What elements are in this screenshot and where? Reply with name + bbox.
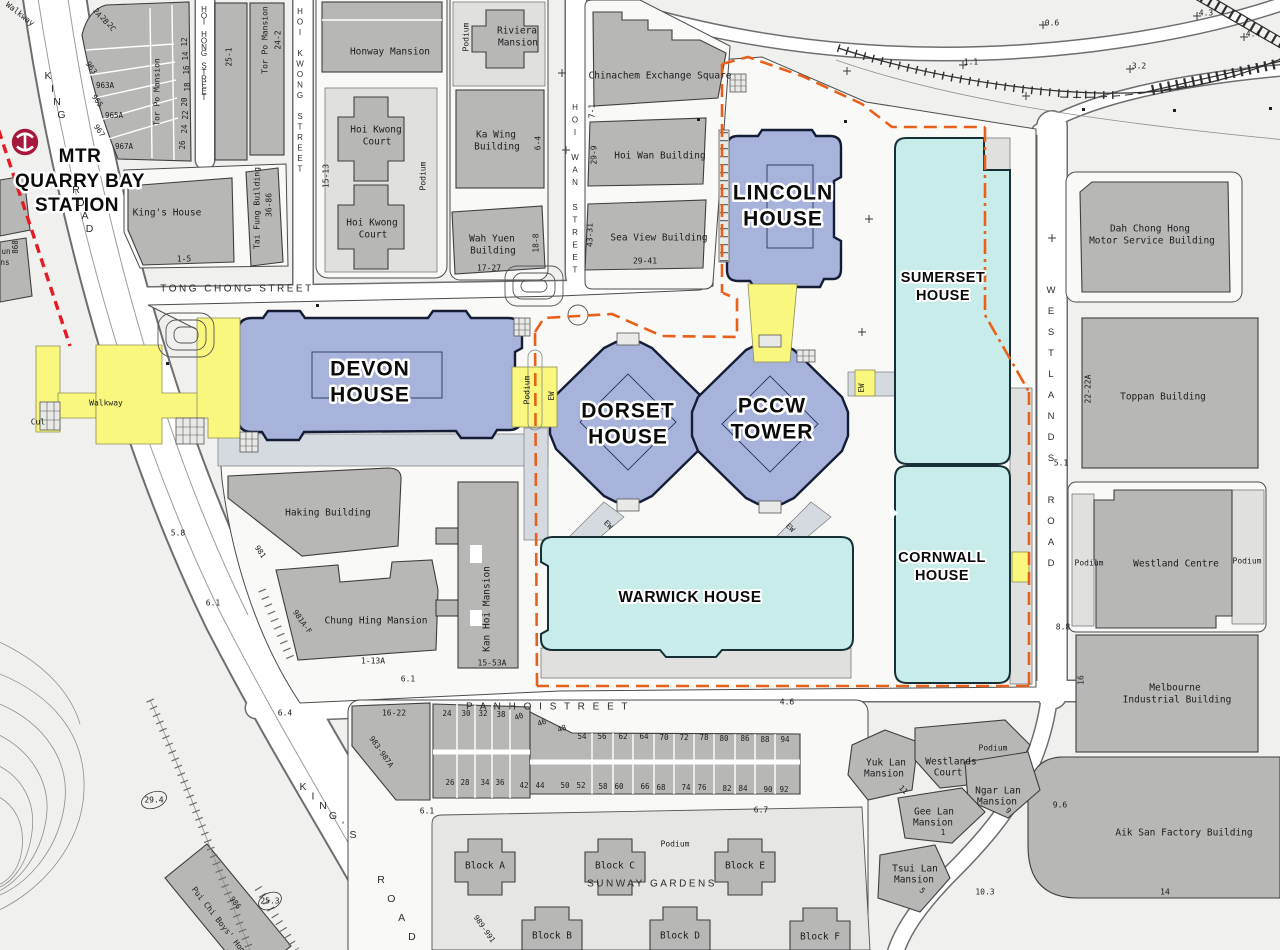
streets-hoi-hong-street-label: HOI HONG STREET bbox=[201, 5, 207, 102]
buildings-block-d-label: Block D bbox=[660, 931, 700, 942]
buildings-36-86-label: 36-86 bbox=[265, 193, 274, 217]
buildings-building-label: Building bbox=[470, 246, 516, 257]
buildings-1-label: 1 bbox=[941, 828, 946, 837]
major_buildings-warwick-house-label: WARWICK HOUSE bbox=[618, 589, 761, 606]
house_numbers-56-label: 56 bbox=[597, 732, 607, 741]
house_numbers-52-label: 52 bbox=[576, 781, 585, 790]
buildings-967a-label: 967A bbox=[115, 142, 134, 151]
buildings-16-22-label: 16-22 bbox=[382, 709, 406, 718]
buildings-tai-fung-building-label: Tai Fung Building bbox=[253, 167, 262, 249]
buildings-podium-label: Podium bbox=[419, 161, 428, 190]
buildings-mansion-label: Mansion bbox=[498, 38, 538, 49]
buildings-1-5-label: 1-5 bbox=[177, 255, 192, 264]
walkways-ew-label: EW bbox=[547, 391, 556, 401]
sumerset-notch bbox=[984, 138, 1010, 172]
buildings-podium-label: Podium bbox=[661, 840, 690, 849]
spot_heights-10-3-label: 10.3 bbox=[975, 888, 994, 897]
buildings-chinachem-exchange-square-label: Chinachem Exchange Square bbox=[589, 71, 732, 82]
buildings-westlands-label: Westlands bbox=[925, 757, 976, 768]
spot_heights-6-1-label: 6.1 bbox=[401, 675, 416, 684]
major_buildings-house-label: HOUSE bbox=[743, 208, 823, 231]
buildings-building-label: Building bbox=[474, 142, 520, 153]
kan-hoi-wing-2 bbox=[436, 600, 458, 616]
spot_heights-5-8-label: 5.8 bbox=[171, 529, 186, 538]
house_numbers-42-label: 42 bbox=[519, 781, 528, 790]
major_buildings-house-label: HOUSE bbox=[588, 426, 668, 449]
buildings-tor-po-mansion-label: Tor Po Mansion bbox=[153, 58, 162, 126]
buildings-ns-label: ns bbox=[0, 258, 9, 267]
buildings-hoi-kwong-label: Hoi Kwong bbox=[346, 218, 397, 229]
house_numbers-62-label: 62 bbox=[618, 732, 627, 741]
house_numbers-68-label: 68 bbox=[656, 783, 666, 792]
house_numbers-24-label: 24 bbox=[442, 709, 452, 718]
house_numbers-74-label: 74 bbox=[681, 783, 691, 792]
buildings-963a-label: 963A bbox=[96, 81, 115, 90]
buildings-25-1-label: 25-1 bbox=[225, 47, 234, 66]
house_numbers-54-label: 54 bbox=[577, 732, 587, 741]
buildings-melbourne-label: Melbourne bbox=[1149, 683, 1201, 694]
kan-hoi-gap-2 bbox=[470, 610, 482, 626]
buildings-29-9-label: 29-9 bbox=[590, 145, 599, 164]
spot_heights-5-1-label: 5.1 bbox=[1054, 459, 1069, 468]
buildings-toppan-building-label: Toppan Building bbox=[1120, 392, 1206, 403]
buildings-block-b-label: Block B bbox=[532, 931, 572, 942]
major_buildings-house-label: HOUSE bbox=[915, 568, 969, 584]
buildings-14-label: 14 bbox=[181, 51, 190, 61]
house_numbers-60-label: 60 bbox=[614, 782, 624, 791]
walkways-walkway-label: Walkway bbox=[89, 399, 123, 408]
spot_heights-6-1-label: 6.1 bbox=[420, 807, 435, 816]
major_buildings-dorset-label: DORSET bbox=[581, 400, 675, 423]
buildings-24-label: 24 bbox=[180, 124, 189, 134]
buildings-honway-mansion-label: Honway Mansion bbox=[350, 47, 430, 58]
pccw-turret-n bbox=[759, 335, 781, 347]
buildings-20-label: 20 bbox=[180, 97, 189, 107]
buildings-block-a-label: Block A bbox=[465, 861, 505, 872]
buildings-podium-label: Podium bbox=[462, 22, 471, 51]
buildings-block-e-label: Block E bbox=[725, 861, 765, 872]
buildings-wah-yuen-label: Wah Yuen bbox=[469, 234, 515, 245]
buildings-1-13a-label: 1-13A bbox=[361, 657, 385, 666]
kan-hoi-gap-1 bbox=[470, 545, 482, 563]
buildings-block-f-label: Block F bbox=[800, 932, 840, 943]
house_numbers-76-label: 76 bbox=[697, 783, 707, 792]
mtr-logo bbox=[12, 129, 38, 155]
spot_heights-6-7-label: 6.7 bbox=[754, 806, 769, 815]
buildings-un-label: un bbox=[1, 247, 10, 256]
spot_heights-8-8-label: 8.8 bbox=[1056, 623, 1071, 632]
spot_heights-6-1-label: 6.1 bbox=[206, 599, 221, 608]
house_numbers-28-label: 28 bbox=[460, 778, 470, 787]
buildings-6-4-label: 6-4 bbox=[534, 136, 543, 151]
streets-sunway-gardens-label: SUNWAY GARDENS bbox=[587, 879, 717, 890]
major_buildings-house-label: HOUSE bbox=[916, 288, 970, 304]
buildings-16-label: 16 bbox=[1077, 675, 1086, 685]
honway-mansion bbox=[322, 2, 442, 72]
buildings-sea-view-building-label: Sea View Building bbox=[610, 233, 707, 244]
buildings-ka-wing-label: Ka Wing bbox=[476, 130, 516, 141]
buildings-22-label: 22 bbox=[181, 110, 190, 119]
station-mtr-label: MTR bbox=[59, 146, 102, 167]
buildings-hoi-kwong-label: Hoi Kwong bbox=[350, 125, 401, 136]
house_numbers-80-label: 80 bbox=[719, 734, 729, 743]
spot_heights-29-4-label: 29.4 bbox=[144, 796, 163, 805]
buildings-24-2-label: 24-2 bbox=[274, 30, 283, 49]
buildings-haking-building-label: Haking Building bbox=[285, 508, 371, 519]
walkways-ew-label: EW bbox=[857, 383, 866, 393]
buildings-podium-label: Podium bbox=[979, 744, 1008, 753]
house_numbers-90-label: 90 bbox=[763, 785, 773, 794]
buildings-16-label: 16 bbox=[182, 65, 191, 75]
buildings-14-label: 14 bbox=[1160, 888, 1170, 897]
stair-grid-2 bbox=[240, 432, 258, 452]
kan-hoi-wing-1 bbox=[436, 528, 458, 544]
buildings-chung-hing-mansion-label: Chung Hing Mansion bbox=[325, 616, 428, 627]
house_numbers-44-label: 44 bbox=[535, 781, 545, 790]
walkways-podium-label: Podium bbox=[523, 375, 532, 404]
buildings-court-label: Court bbox=[363, 137, 392, 148]
house_numbers-92-label: 92 bbox=[779, 785, 788, 794]
buildings-7-1-label: 7-1 bbox=[588, 104, 597, 119]
spot_heights-3-2-label: 3.2 bbox=[1132, 62, 1147, 71]
buildings-podium-label: Podium bbox=[1075, 559, 1104, 568]
house_numbers-30-label: 30 bbox=[461, 709, 471, 718]
house_numbers-58-label: 58 bbox=[598, 782, 608, 791]
walkway-cornwall-east bbox=[1012, 552, 1029, 582]
buildings-965a-label: 965A bbox=[105, 111, 124, 120]
major_buildings-sumerset-label: SUMERSET bbox=[901, 270, 986, 286]
house_numbers-32-label: 32 bbox=[478, 709, 487, 718]
buildings-industrial-building-label: Industrial Building bbox=[1123, 695, 1232, 706]
buildings-kan-hoi-mansion-label: Kan Hoi Mansion bbox=[482, 566, 493, 652]
house_numbers-64-label: 64 bbox=[639, 732, 649, 741]
dorset-turret-n bbox=[617, 333, 639, 345]
buildings-mansion-label: Mansion bbox=[913, 818, 953, 829]
buildings-mansion-label: Mansion bbox=[864, 769, 904, 780]
buildings-18-label: 18 bbox=[183, 82, 192, 92]
spot_heights-0-6-label: 0.6 bbox=[1045, 19, 1060, 28]
buildings-18-8-label: 18-8 bbox=[532, 233, 541, 252]
buildings-12-label: 12 bbox=[180, 37, 189, 46]
buildings-868-label: 868 bbox=[11, 240, 20, 254]
buildings-29-41-label: 29-41 bbox=[633, 257, 657, 266]
station-quarry-bay-label: QUARRY BAY bbox=[15, 171, 145, 192]
house_numbers-78-label: 78 bbox=[699, 733, 709, 742]
buildings-ngar-lan-label: Ngar Lan bbox=[975, 786, 1021, 797]
buildings-15-53a-label: 15-53A bbox=[478, 659, 507, 668]
buildings-aik-san-factory-building-label: Aik San Factory Building bbox=[1115, 828, 1252, 839]
buildings-king-s-house-label: King's House bbox=[133, 208, 202, 219]
spot_heights-4-3-label: 4.3 bbox=[1199, 9, 1214, 18]
buildings-17-27-label: 17-27 bbox=[477, 264, 501, 273]
buildings-gee-lan-label: Gee Lan bbox=[914, 807, 954, 818]
buildings-43-31-label: 43-31 bbox=[586, 223, 595, 247]
major_buildings-devon-label: DEVON bbox=[330, 358, 410, 381]
walkways-cul-label: Cul bbox=[31, 418, 46, 427]
major_buildings-house-label: HOUSE bbox=[330, 384, 410, 407]
house_numbers-38-label: 38 bbox=[496, 710, 506, 719]
house_numbers-88-label: 88 bbox=[760, 735, 770, 744]
house_numbers-34-label: 34 bbox=[480, 778, 490, 787]
house_numbers-70-label: 70 bbox=[659, 733, 669, 742]
house_numbers-84-label: 84 bbox=[738, 784, 748, 793]
buildings-dah-chong-hong-label: Dah Chong Hong bbox=[1110, 224, 1190, 235]
house_numbers-26-label: 26 bbox=[445, 778, 455, 787]
walkway-lincoln-pccw bbox=[748, 284, 797, 362]
streets-p-a-n-h-o-i-s-t-r-e-e-t-label: P A N H O I S T R E E T bbox=[466, 702, 630, 713]
house_numbers-50-label: 50 bbox=[560, 781, 570, 790]
house_numbers-82-label: 82 bbox=[722, 784, 731, 793]
building-25-1 bbox=[215, 3, 247, 160]
spot_heights-9-6-label: 9.6 bbox=[1053, 801, 1068, 810]
buildings-hoi-wan-building-label: Hoi Wan Building bbox=[614, 151, 706, 162]
stair-grid-4 bbox=[730, 74, 746, 92]
major_buildings-lincoln-label: LINCOLN bbox=[733, 182, 833, 205]
spot_heights-6-4-label: 6.4 bbox=[278, 709, 293, 718]
major_buildings-pccw-label: PCCW bbox=[738, 395, 806, 418]
house_numbers-66-label: 66 bbox=[640, 782, 650, 791]
buildings-22-22a-label: 22-22A bbox=[1084, 374, 1093, 403]
stair-grid-1 bbox=[514, 318, 530, 336]
buildings-tor-po-mansion-label: Tor Po Mansion bbox=[261, 6, 270, 74]
major_buildings-tower-label: TOWER bbox=[731, 421, 814, 444]
pccw-turret-s bbox=[759, 501, 781, 513]
buildings-court-label: Court bbox=[359, 230, 388, 241]
buildings-podium-label: Podium bbox=[1233, 557, 1262, 566]
buildings-court-label: Court bbox=[934, 768, 963, 779]
buildings-westland-centre-label: Westland Centre bbox=[1133, 559, 1219, 570]
spot_heights-4-4-label: 4.4 bbox=[1246, 30, 1261, 39]
buildings-15-13-label: 15-13 bbox=[322, 164, 331, 188]
spot_heights-4-6-label: 4.6 bbox=[780, 698, 795, 707]
melbourne-industrial-building bbox=[1076, 635, 1258, 752]
major_buildings-cornwall-label: CORNWALL bbox=[898, 550, 986, 566]
buildings-block-c-label: Block C bbox=[595, 861, 635, 872]
house_numbers-72-label: 72 bbox=[679, 733, 688, 742]
house_numbers-36-label: 36 bbox=[495, 778, 505, 787]
buildings-mansion-label: Mansion bbox=[894, 875, 934, 886]
buildings-yuk-lan-label: Yuk Lan bbox=[866, 758, 906, 769]
map-stage: MTR QUARRY BAY STATION bbox=[0, 0, 1280, 950]
buildings-26-label: 26 bbox=[178, 140, 187, 150]
house_numbers-94-label: 94 bbox=[780, 735, 790, 744]
buildings-motor-service-building-label: Motor Service Building bbox=[1089, 236, 1215, 247]
dorset-turret-s bbox=[617, 499, 639, 511]
buildings-riviera-label: Riviera bbox=[497, 26, 537, 37]
spot_heights-25-3-label: 25.3 bbox=[260, 897, 279, 906]
buildings-tsui-lan-label: Tsui Lan bbox=[892, 864, 938, 875]
spot_heights-1-1-label: 1.1 bbox=[964, 58, 979, 67]
site-map: MTR QUARRY BAY STATION bbox=[0, 0, 1280, 950]
streets-tong-chong-street-label: TONG CHONG STREET bbox=[160, 284, 313, 295]
house_numbers-86-label: 86 bbox=[740, 734, 750, 743]
